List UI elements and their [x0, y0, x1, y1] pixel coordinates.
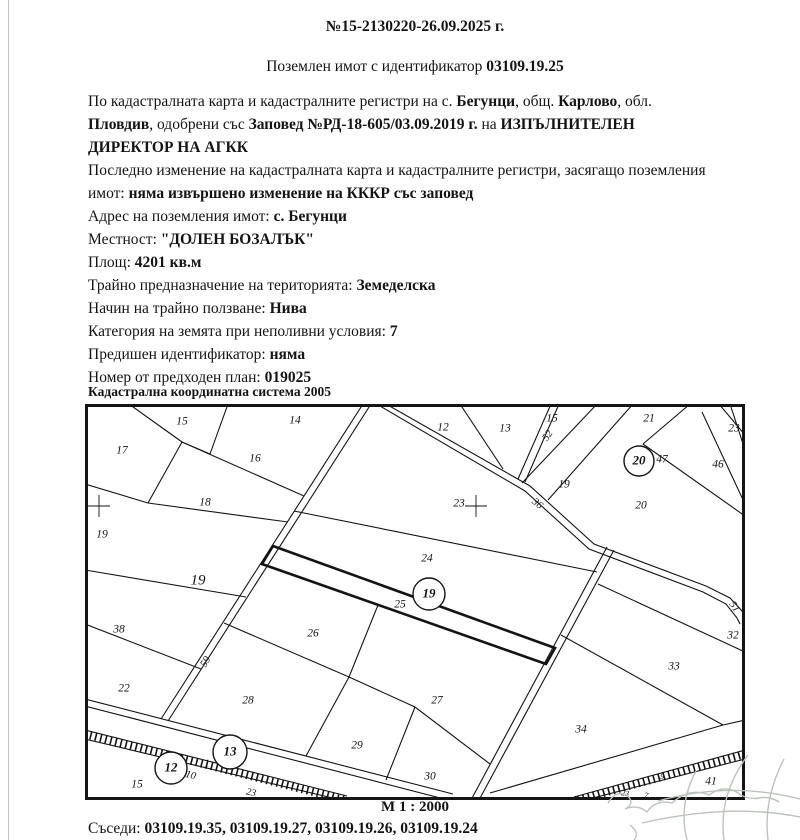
detail-line: Адрес на поземления имот: с. Бегунци [88, 205, 748, 228]
text-segment: на [478, 116, 501, 133]
parcel-label: 38 [112, 624, 125, 636]
parcel-label: 20 [635, 500, 647, 512]
detail-line: По кадастралната карта и кадастралните р… [88, 90, 748, 113]
parcel-label: 17 [116, 445, 129, 457]
detail-line: Площ: 4201 кв.м [88, 251, 748, 274]
parcel-line [294, 511, 597, 572]
subject-parcel-outline [262, 546, 555, 664]
detail-line: Трайно предназначение на територията: Зе… [88, 274, 748, 297]
map-sheet-number: 12 [165, 759, 179, 774]
property-details: По кадастралната карта и кадастралните р… [88, 90, 748, 389]
detail-line: Категория на земята при неполивни услови… [88, 320, 748, 343]
parcel-line [182, 442, 304, 496]
parcel-line [306, 677, 349, 756]
detail-line: имот: няма извършено изменение на КККР с… [88, 182, 748, 205]
parcel-label: 15 [546, 413, 558, 425]
parcel-label: 33 [667, 661, 680, 673]
coordinate-system-label: Кадастрална координатна система 2005 [88, 384, 331, 400]
parcel-label: 13 [499, 423, 511, 435]
cadastral-sketch-document: №15-2130220-26.09.2025 г. Поземлен имот … [0, 0, 800, 840]
parcel-label: 24 [421, 553, 433, 565]
text-segment: 03109.19.35, 03109.19.27, 03109.19.26, 0… [144, 820, 477, 837]
text-segment: ДИРЕКТОР НА АГКК [88, 139, 248, 156]
text-segment: Заповед №РД-18-605/03.09.2019 г. [249, 116, 478, 133]
text-segment: 7 [390, 323, 398, 340]
parcel-label: 47 [656, 454, 669, 466]
text-segment: Предишен идентификатор: [88, 346, 270, 363]
detail-line: Пловдив, одобрени със Заповед №РД-18-605… [88, 113, 748, 136]
map-sheet-number: 13 [224, 743, 238, 758]
text-segment: , общ. [515, 93, 558, 110]
text-segment: няма [270, 346, 306, 363]
parcel-label: 23 [728, 423, 740, 435]
parcel-line [85, 624, 201, 669]
map-sheet-number: 20 [632, 452, 647, 467]
text-segment: Адрес на поземления имот: [88, 208, 274, 225]
parcel-label: 22 [118, 683, 130, 695]
text-segment: ИЗПЪЛНИТЕЛЕН [501, 116, 635, 133]
parcel-label: 19 [191, 572, 207, 588]
parcel-label: 16 [249, 453, 261, 465]
detail-line: ДИРЕКТОР НА АГКК [88, 136, 748, 159]
road-line [161, 404, 363, 719]
parcel-label: 34 [574, 724, 587, 736]
text-segment: Съседи: [88, 820, 144, 837]
text-segment: Последно изменение на кадастралната карт… [88, 162, 706, 179]
text-segment: , одобрени със [149, 116, 248, 133]
road-line [471, 547, 607, 800]
parcel-label: 14 [289, 415, 301, 427]
parcel-label: 46 [712, 459, 724, 471]
text-segment: Нива [270, 300, 307, 317]
text-segment: с. Бегунци [274, 208, 347, 225]
parcel-line [129, 404, 182, 442]
map-sheet-number: 19 [423, 585, 437, 600]
property-identifier-line: Поземлен имот с идентификатор 03109.19.2… [85, 58, 745, 76]
page-edge-line [8, 0, 9, 840]
text-segment: 4201 кв.м [135, 254, 202, 271]
cadastral-map-drawing: 1514171618191938222826242512131519232123… [85, 404, 745, 800]
parcel-label: 19 [96, 529, 108, 541]
parcel-line [386, 707, 415, 780]
text-segment: Трайно предназначение на територията: [88, 277, 356, 294]
parcel-label: 1 [205, 758, 210, 769]
parcel-line [723, 720, 745, 725]
road-label: 51 [727, 599, 742, 614]
text-segment: По кадастралната карта и кадастралните р… [88, 93, 456, 110]
parcel-label: 21 [643, 413, 655, 425]
parcel-label: 15 [131, 779, 143, 791]
parcel-label: 15 [176, 416, 188, 428]
detail-line: Местност: "ДОЛЕН БОЗАЛЪК" [88, 228, 748, 251]
text-segment: Земеделска [356, 277, 435, 294]
parcel-label: 18 [199, 497, 211, 509]
parcel-label: 30 [423, 771, 436, 783]
parcel-label: 27 [431, 695, 444, 707]
text-segment: Категория на земята при неполивни услови… [88, 323, 390, 340]
grid-crosses [88, 495, 487, 517]
detail-line: Последно изменение на кадастралната карт… [88, 159, 748, 182]
parcel-line [561, 635, 723, 725]
text-segment: , обл. [617, 93, 652, 110]
text-segment: Карлово [558, 93, 617, 110]
agency-globe-watermark [600, 755, 800, 840]
parcel-label: 29 [351, 740, 363, 752]
parcel-line [148, 503, 288, 522]
text-segment: няма извършено изменение на КККР със зап… [129, 185, 474, 202]
parcel-line [148, 442, 182, 503]
parcel-label: 19 [558, 479, 570, 491]
cadastral-map: 1514171618191938222826242512131519232123… [85, 404, 745, 800]
parcel-label: 12 [437, 422, 449, 434]
parcel-line [349, 605, 378, 677]
parcel-label: 25 [394, 599, 406, 611]
parcel-label: 26 [307, 628, 319, 640]
text-segment: Площ: [88, 254, 135, 271]
parcel-line [85, 570, 246, 597]
parcel-label: 28 [242, 695, 254, 707]
parcel-label: 32 [726, 630, 739, 642]
text-segment: имот: [88, 185, 129, 202]
detail-line: Начин на трайно ползване: Нива [88, 297, 748, 320]
text-segment: "ДОЛЕН БОЗАЛЪК" [161, 231, 314, 248]
parcel-line [349, 677, 490, 764]
parcel-label: 23 [453, 498, 465, 510]
parcel-line [210, 404, 228, 454]
text-segment: Местност: [88, 231, 161, 248]
text-segment: Поземлен имот с идентификатор [266, 58, 486, 75]
text-segment: Начин на трайно ползване: [88, 300, 270, 317]
text-segment: 03109.19.25 [486, 58, 564, 75]
parcel-line [460, 404, 503, 469]
parcel-line [85, 484, 148, 503]
document-number: №15-2130220-26.09.2025 г. [85, 18, 745, 36]
text-segment: Пловдив [88, 116, 149, 133]
detail-line: Предишен идентификатор: няма [88, 343, 748, 366]
parcel-line [224, 623, 349, 677]
neighbors-line: Съседи: 03109.19.35, 03109.19.27, 03109.… [88, 820, 478, 838]
text-segment: Бегунци [456, 93, 515, 110]
